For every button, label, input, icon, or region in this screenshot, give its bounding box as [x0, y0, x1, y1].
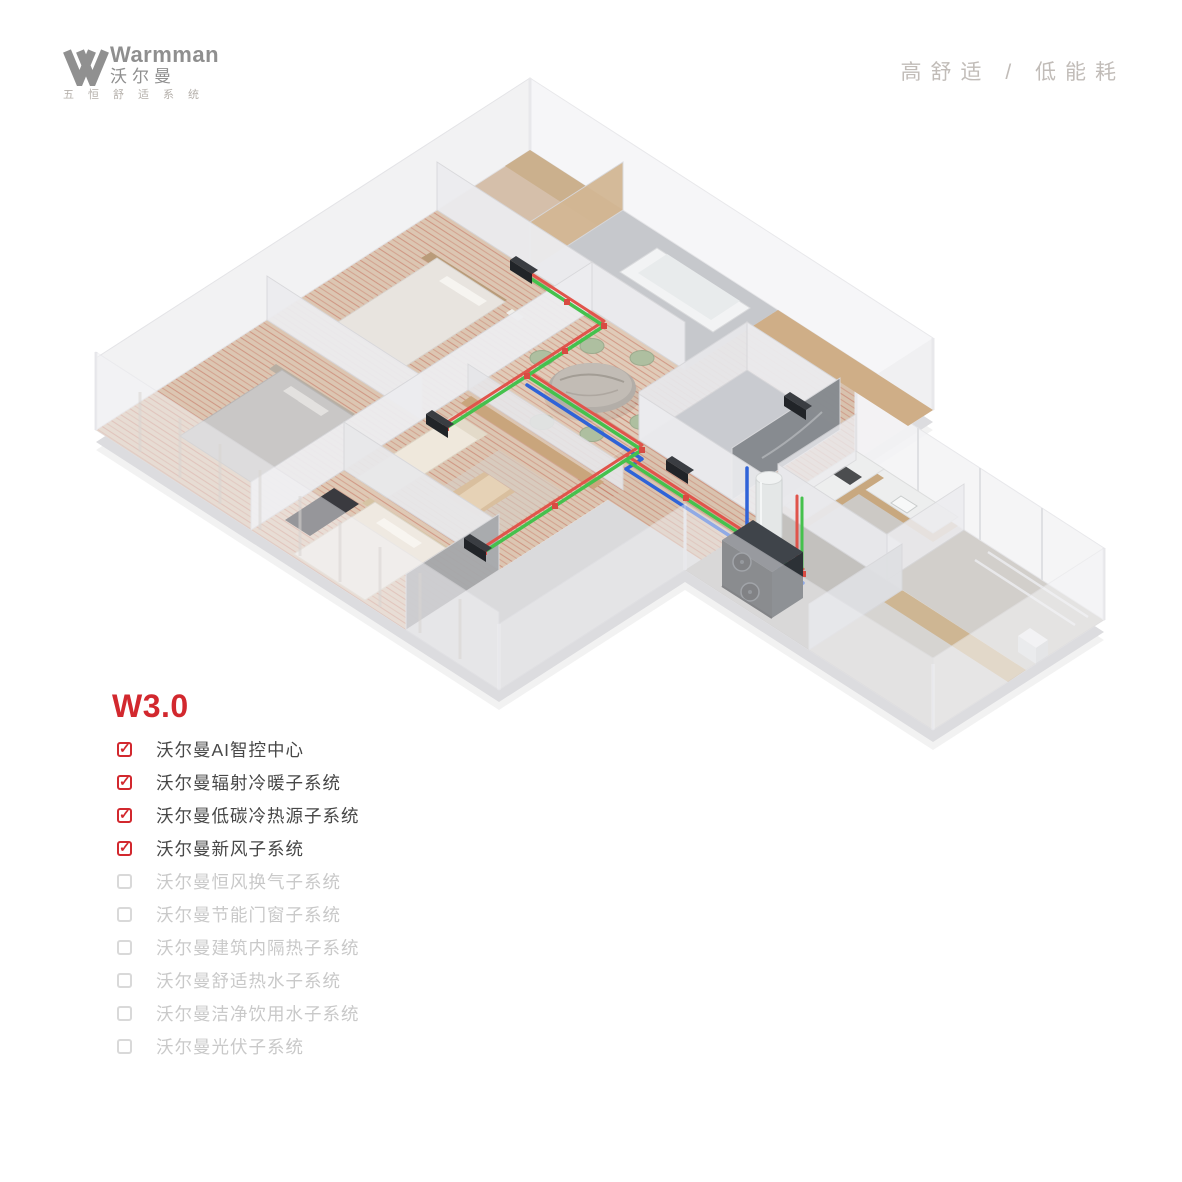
checkbox-icon	[117, 808, 132, 823]
dining-chair	[530, 351, 554, 366]
checklist-item-label: 沃尔曼辐射冷暖子系统	[156, 770, 341, 795]
dining-chair	[630, 351, 654, 366]
checklist-item-label: 沃尔曼低碳冷热源子系统	[156, 803, 360, 828]
checklist-item-label: 沃尔曼建筑内隔热子系统	[156, 935, 360, 960]
checklist-item: 沃尔曼恒风换气子系统	[117, 871, 360, 891]
checkbox-icon	[117, 1006, 132, 1021]
checklist-item-label: 沃尔曼光伏子系统	[156, 1034, 304, 1059]
checklist-item: 沃尔曼舒适热水子系统	[117, 970, 360, 990]
checklist-item-label: 沃尔曼恒风换气子系统	[156, 869, 341, 894]
system-checklist: 沃尔曼AI智控中心 沃尔曼辐射冷暖子系统 沃尔曼低碳冷热源子系统 沃尔曼新风子系…	[117, 739, 360, 1056]
checklist-item-label: 沃尔曼AI智控中心	[156, 737, 304, 762]
checklist-item: 沃尔曼新风子系统	[117, 838, 360, 858]
warmman-logo-icon	[63, 48, 109, 86]
brand-slogan: 五恒舒适系统	[63, 86, 213, 102]
version-title: W3.0	[112, 688, 189, 725]
header-tagline: 高舒适 / 低能耗	[900, 56, 1125, 86]
checklist-item: 沃尔曼建筑内隔热子系统	[117, 937, 360, 957]
checklist-item: 沃尔曼AI智控中心	[117, 739, 360, 759]
checklist-item: 沃尔曼光伏子系统	[117, 1036, 360, 1056]
checklist-item: 沃尔曼辐射冷暖子系统	[117, 772, 360, 792]
checklist-item-label: 沃尔曼舒适热水子系统	[156, 968, 341, 993]
brand-name-cn: 沃尔曼	[110, 67, 219, 87]
checklist-item-label: 沃尔曼新风子系统	[156, 836, 304, 861]
brand-name-en: Warmman	[110, 44, 219, 66]
checkbox-icon	[117, 1039, 132, 1054]
checkbox-icon	[117, 973, 132, 988]
checkbox-icon	[117, 841, 132, 856]
checklist-item-label: 沃尔曼节能门窗子系统	[156, 902, 341, 927]
checkbox-icon	[117, 940, 132, 955]
checkbox-icon	[117, 742, 132, 757]
checklist-item: 沃尔曼节能门窗子系统	[117, 904, 360, 924]
checkbox-icon	[117, 775, 132, 790]
checkbox-icon	[117, 874, 132, 889]
checkbox-icon	[117, 907, 132, 922]
checklist-item: 沃尔曼低碳冷热源子系统	[117, 805, 360, 825]
checklist-item-label: 沃尔曼洁净饮用水子系统	[156, 1001, 360, 1026]
checklist-item: 沃尔曼洁净饮用水子系统	[117, 1003, 360, 1023]
